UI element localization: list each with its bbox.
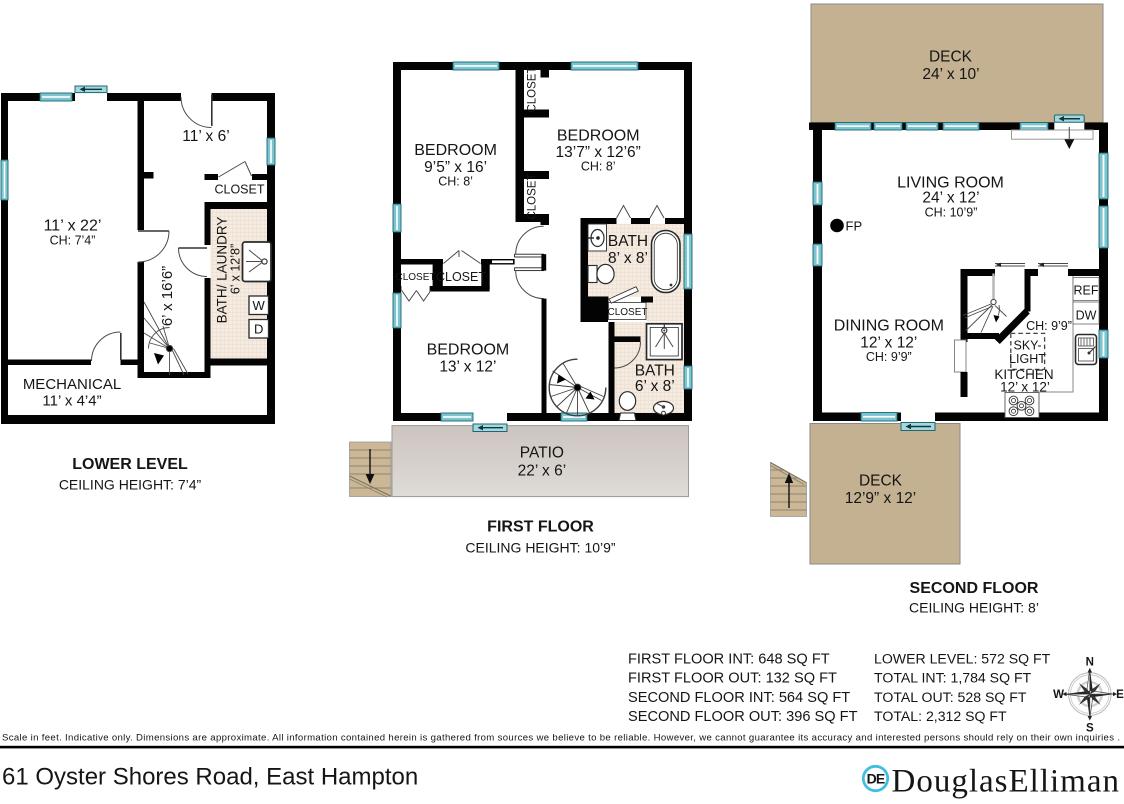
svg-text:CLOSET: CLOSET: [436, 270, 486, 284]
svg-text:MECHANICAL: MECHANICAL: [23, 376, 121, 393]
svg-text:LOWER LEVEL: 572 SQ FT: LOWER LEVEL: 572 SQ FT: [874, 651, 1051, 667]
svg-text:6’ x 8’: 6’ x 8’: [635, 378, 675, 395]
svg-text:Scale in feet. Indicative only: Scale in feet. Indicative only. Dimensio…: [2, 733, 1120, 744]
svg-text:CH: 8’: CH: 8’: [438, 175, 473, 189]
svg-text:DW: DW: [1076, 309, 1097, 323]
svg-text:DECK: DECK: [929, 49, 973, 66]
svg-text:N: N: [1086, 657, 1094, 669]
svg-text:6’ x 16’6”: 6’ x 16’6”: [159, 266, 176, 326]
svg-text:LOWER LEVEL: LOWER LEVEL: [72, 456, 188, 473]
svg-text:13’ x 12’: 13’ x 12’: [439, 359, 496, 376]
svg-text:DouglasElliman: DouglasElliman: [892, 764, 1120, 800]
svg-text:BATH: BATH: [608, 233, 648, 250]
svg-text:24’ x 12’: 24’ x 12’: [922, 190, 979, 207]
svg-text:TOTAL INT: 1,784 SQ FT: TOTAL INT: 1,784 SQ FT: [874, 670, 1032, 686]
svg-text:BEDROOM: BEDROOM: [427, 342, 510, 359]
svg-text:FIRST FLOOR OUT: 132 SQ FT: FIRST FLOOR OUT: 132 SQ FT: [628, 671, 837, 687]
svg-text:CH: 9’9”: CH: 9’9”: [866, 350, 912, 364]
svg-text:22’ x 6’: 22’ x 6’: [518, 463, 567, 480]
svg-text:TOTAL: 2,312 SQ FT: TOTAL: 2,312 SQ FT: [874, 708, 1007, 724]
svg-text:CEILING HEIGHT: 7’4”: CEILING HEIGHT: 7’4”: [59, 477, 202, 493]
svg-text:11’ x 22’: 11’ x 22’: [44, 218, 102, 235]
svg-text:BATH: BATH: [635, 363, 675, 380]
svg-text:CLOSET: CLOSET: [214, 183, 264, 197]
svg-text:CLOSET: CLOSET: [527, 173, 539, 219]
svg-text:24’ x 10’: 24’ x 10’: [922, 66, 979, 83]
svg-text:SKY-: SKY-: [1013, 339, 1041, 353]
svg-text:BATH/ LAUNDRY: BATH/ LAUNDRY: [215, 217, 230, 324]
svg-text:13’7” x 12’6”: 13’7” x 12’6”: [556, 144, 641, 161]
svg-text:TOTAL OUT: 528 SQ FT: TOTAL OUT: 528 SQ FT: [874, 689, 1027, 705]
svg-text:CLOSET: CLOSET: [607, 307, 647, 318]
svg-text:REF: REF: [1074, 284, 1099, 298]
svg-text:BEDROOM: BEDROOM: [557, 128, 640, 145]
svg-text:DE: DE: [867, 771, 885, 787]
svg-text:12’ x 12’: 12’ x 12’: [860, 335, 917, 352]
svg-text:W: W: [253, 298, 266, 313]
svg-text:DINING ROOM: DINING ROOM: [834, 318, 944, 335]
svg-text:W: W: [1053, 689, 1064, 701]
svg-text:8’ x 8’: 8’ x 8’: [608, 250, 648, 267]
svg-text:12’9” x 12’: 12’9” x 12’: [845, 490, 917, 507]
svg-text:D: D: [254, 322, 263, 337]
svg-text:SECOND FLOOR INT: 564 SQ FT: SECOND FLOOR INT: 564 SQ FT: [628, 690, 850, 706]
svg-text:SECOND FLOOR: SECOND FLOOR: [910, 580, 1039, 597]
svg-text:SECOND FLOOR OUT: 396 SQ FT: SECOND FLOOR OUT: 396 SQ FT: [628, 709, 858, 725]
svg-text:PATIO: PATIO: [520, 445, 564, 462]
svg-text:FP: FP: [846, 219, 863, 234]
svg-text:61 Oyster Shores Road, East Ha: 61 Oyster Shores Road, East Hampton: [2, 764, 418, 791]
svg-text:E: E: [1116, 689, 1124, 701]
svg-text:BEDROOM: BEDROOM: [414, 142, 497, 159]
svg-text:11’ x 4’4”: 11’ x 4’4”: [42, 393, 101, 410]
svg-text:CH: 10’9”: CH: 10’9”: [925, 206, 978, 220]
svg-text:CH: 9’9”: CH: 9’9”: [1026, 319, 1072, 333]
svg-text:9’5” x 16’: 9’5” x 16’: [424, 159, 487, 176]
svg-text:CLOSET: CLOSET: [395, 272, 435, 283]
svg-text:DECK: DECK: [859, 473, 903, 490]
svg-text:CEILING HEIGHT: 10’9”: CEILING HEIGHT: 10’9”: [465, 540, 615, 556]
svg-text:CLOSET: CLOSET: [527, 66, 539, 112]
svg-text:FIRST FLOOR INT: 648 SQ FT: FIRST FLOOR INT: 648 SQ FT: [628, 652, 830, 668]
svg-text:LIGHT: LIGHT: [1009, 352, 1046, 366]
svg-text:6’ x 12’8”: 6’ x 12’8”: [229, 244, 243, 294]
svg-text:CH: 7’4”: CH: 7’4”: [50, 234, 96, 248]
svg-text:CH: 8’: CH: 8’: [581, 160, 616, 174]
svg-text:CEILING HEIGHT: 8’: CEILING HEIGHT: 8’: [909, 600, 1039, 616]
svg-text:FIRST FLOOR: FIRST FLOOR: [487, 519, 594, 536]
svg-text:11’ x 6’: 11’ x 6’: [182, 128, 229, 145]
